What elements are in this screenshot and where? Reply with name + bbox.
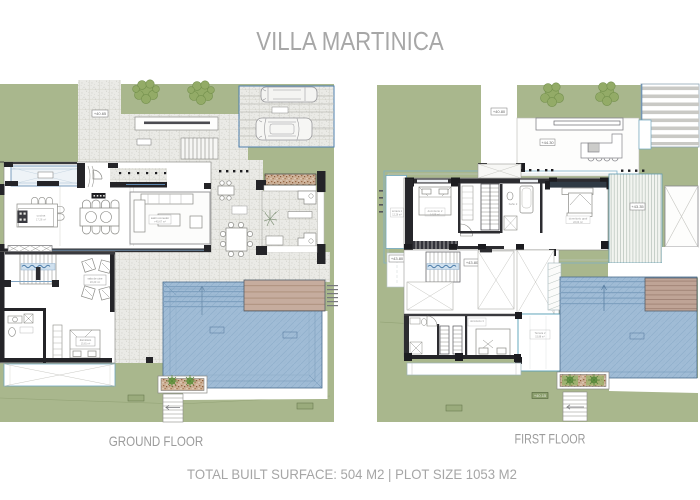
svg-text:+44.30: +44.30 [541,140,554,145]
svg-text:15,81 m²: 15,81 m² [81,343,91,346]
svg-text:20,23 m²: 20,23 m² [90,280,100,284]
svg-text:Terraza 2: Terraza 2 [535,331,546,335]
svg-text:17,28 m²: 17,28 m² [36,218,46,222]
svg-text:14,55 m²: 14,55 m² [430,213,440,216]
svg-text:+43.35: +43.35 [631,204,644,209]
svg-text:TOTAL BUILT SURFACE: 504 M2 |: TOTAL BUILT SURFACE: 504 M2 | PLOT SIZE … [187,467,517,482]
svg-text:+43.80: +43.80 [391,256,404,261]
svg-text:GROUND FLOOR: GROUND FLOOR [109,433,204,449]
svg-text:15,88 m²: 15,88 m² [535,336,545,339]
svg-text:baño 2: baño 2 [509,202,518,206]
svg-text:+40.65: +40.65 [94,111,107,116]
svg-text:FIRST FLOOR: FIRST FLOOR [515,431,586,447]
svg-text:+40.80: +40.80 [493,109,506,114]
svg-text:sala de cine: sala de cine [88,277,103,281]
svg-text:22,04 m²: 22,04 m² [573,221,583,224]
svg-text:cocina: cocina [37,214,46,218]
svg-text:dormitorio: dormitorio [80,338,92,342]
svg-text:12,26 m²: 12,26 m² [392,213,402,216]
svg-text:salón comedor: salón comedor [151,216,169,220]
svg-text:dormitorio 3: dormitorio 3 [470,319,484,323]
svg-text:+40,67 m²: +40,67 m² [154,220,166,224]
svg-text:+40.15: +40.15 [534,393,547,398]
svg-text:VILLA MARTINICA: VILLA MARTINICA [256,27,444,56]
svg-text:+43.80: +43.80 [466,260,479,265]
